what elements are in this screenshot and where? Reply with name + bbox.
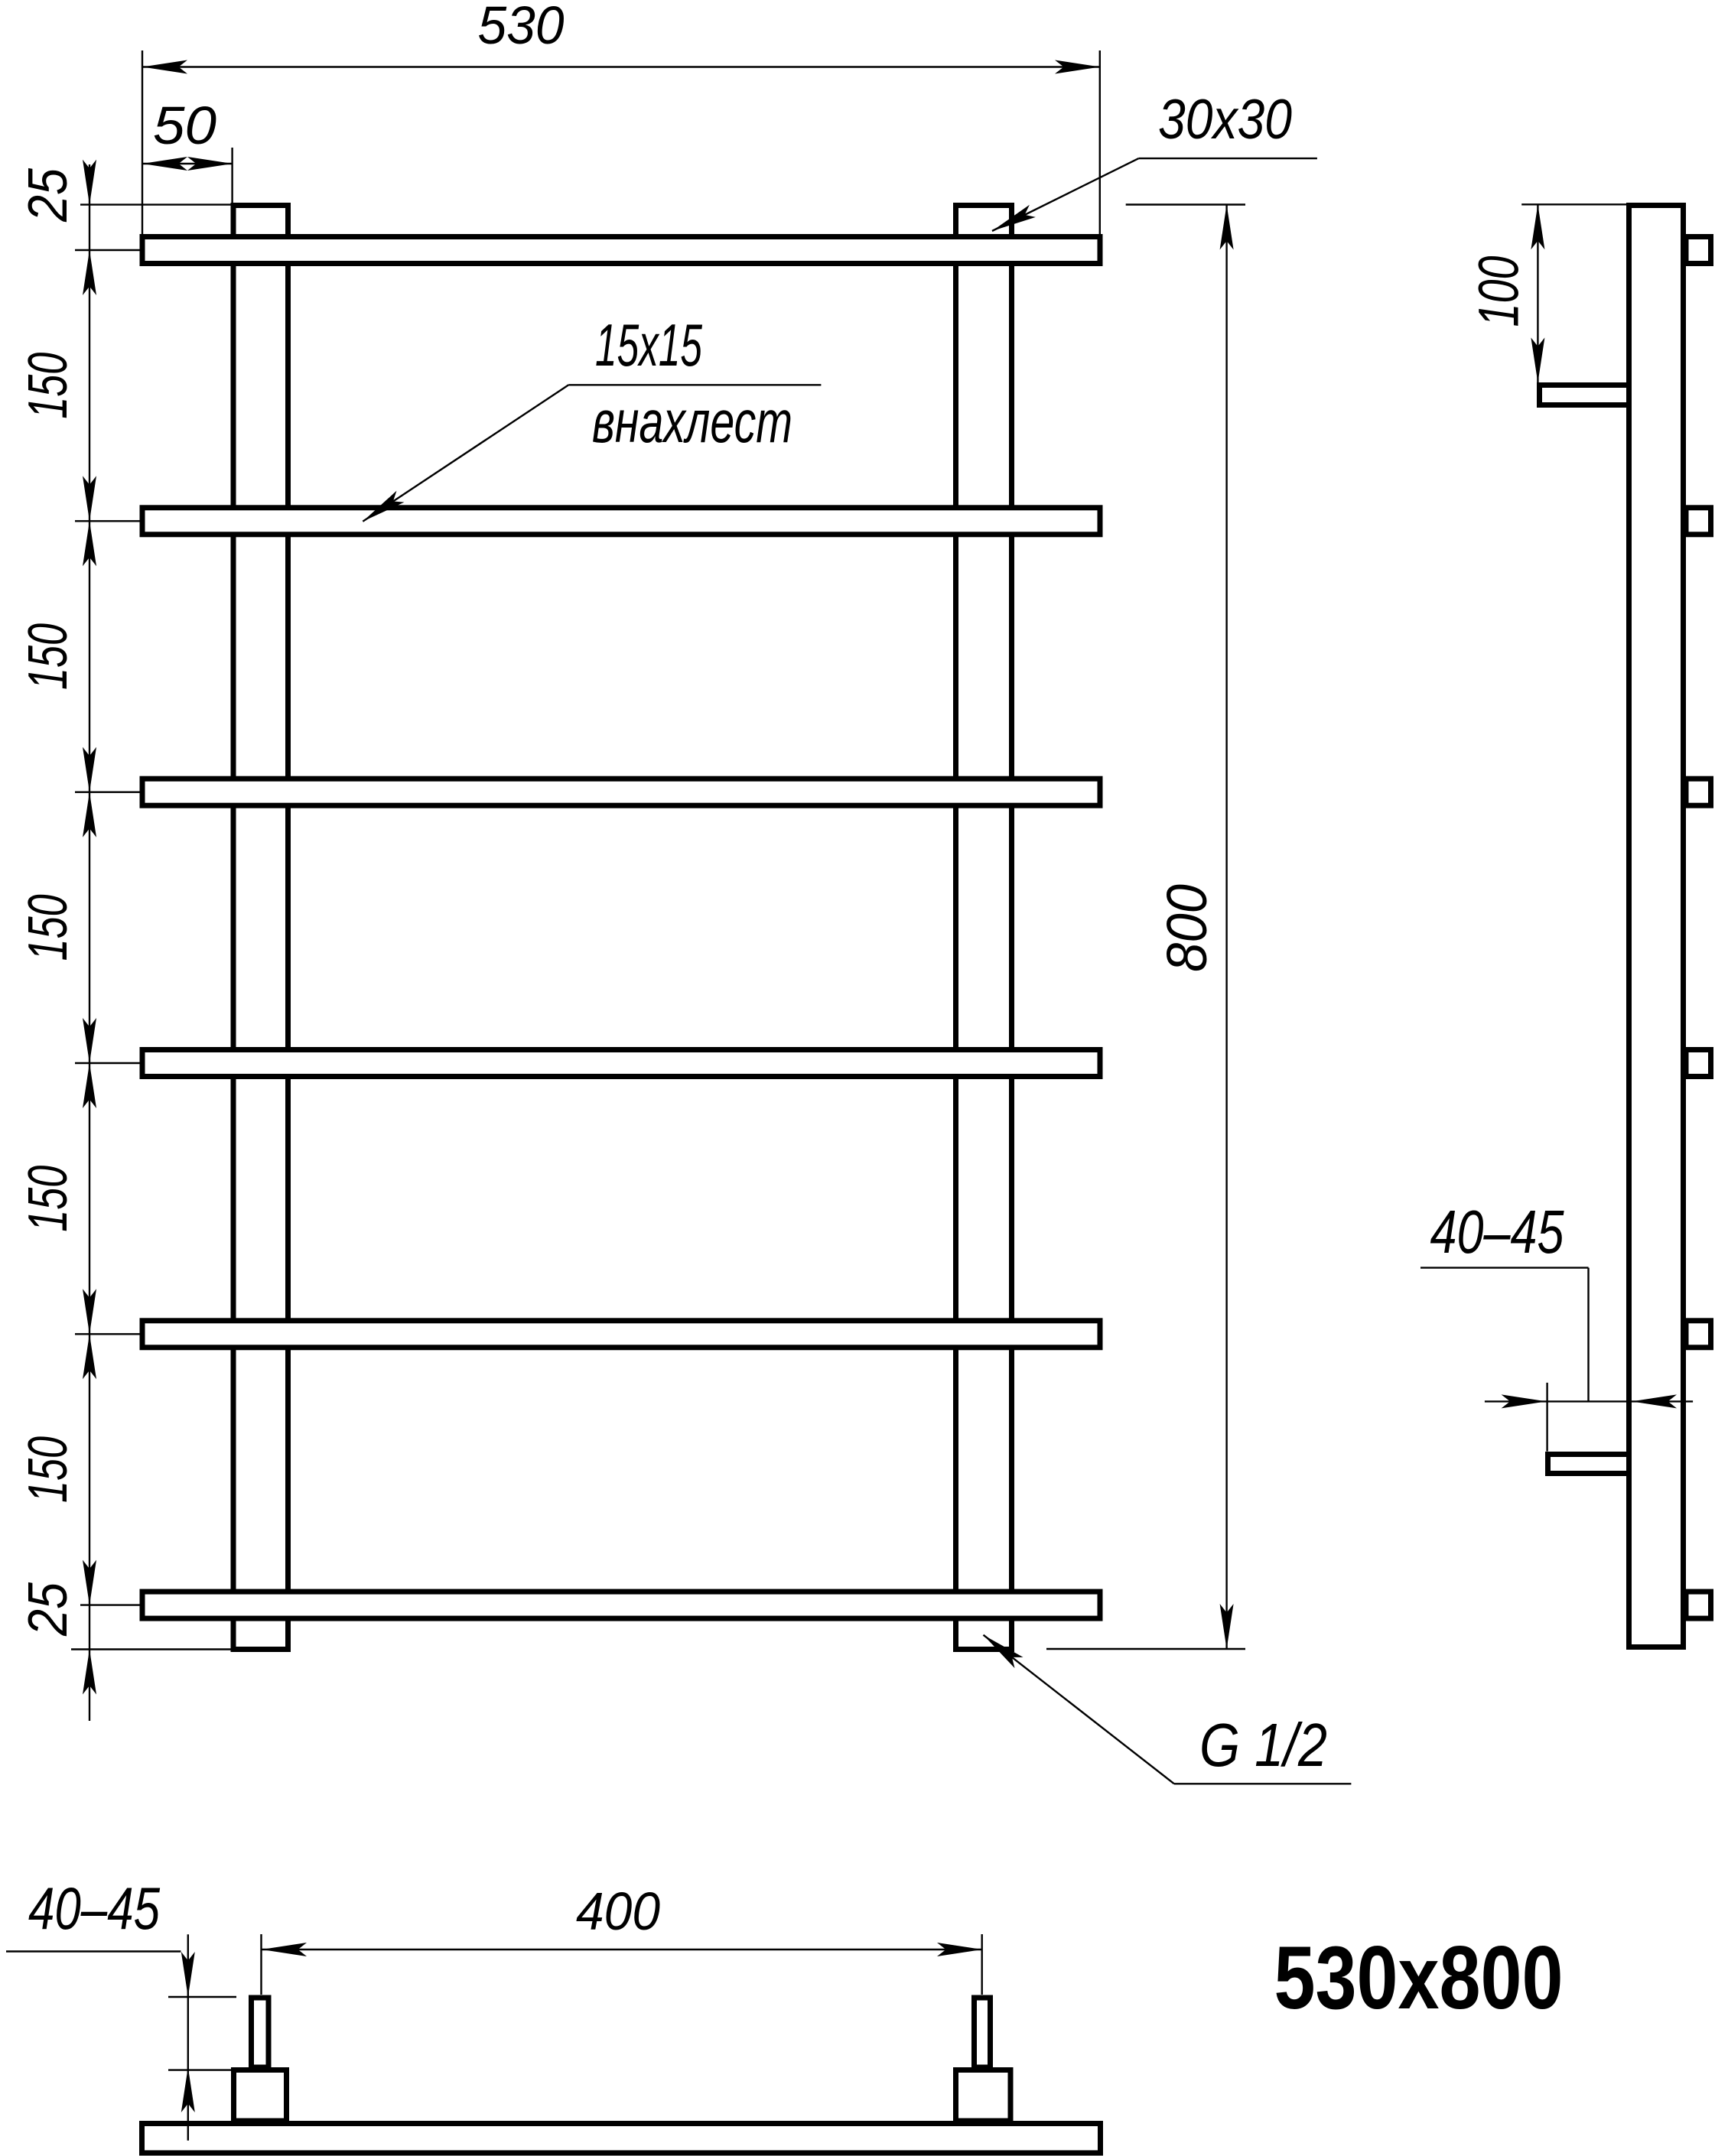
svg-text:40–45: 40–45 <box>1430 1198 1564 1266</box>
svg-text:внахлест: внахлест <box>592 388 792 455</box>
svg-text:40–45: 40–45 <box>28 1875 160 1942</box>
svg-text:15x15: 15x15 <box>595 311 702 379</box>
svg-text:150: 150 <box>18 623 79 690</box>
svg-text:400: 400 <box>576 1881 660 1941</box>
svg-text:50: 50 <box>153 96 216 155</box>
svg-text:25: 25 <box>18 1582 79 1637</box>
svg-text:100: 100 <box>1467 256 1531 327</box>
svg-text:530x800: 530x800 <box>1274 1927 1564 2028</box>
svg-text:G 1/2: G 1/2 <box>1199 1711 1327 1779</box>
svg-text:530: 530 <box>478 0 565 55</box>
svg-text:150: 150 <box>18 894 79 961</box>
svg-text:150: 150 <box>18 353 79 419</box>
svg-text:25: 25 <box>18 167 79 223</box>
svg-text:150: 150 <box>18 1166 79 1232</box>
svg-text:30x30: 30x30 <box>1158 89 1292 151</box>
svg-text:800: 800 <box>1155 884 1219 972</box>
svg-text:150: 150 <box>18 1436 79 1503</box>
